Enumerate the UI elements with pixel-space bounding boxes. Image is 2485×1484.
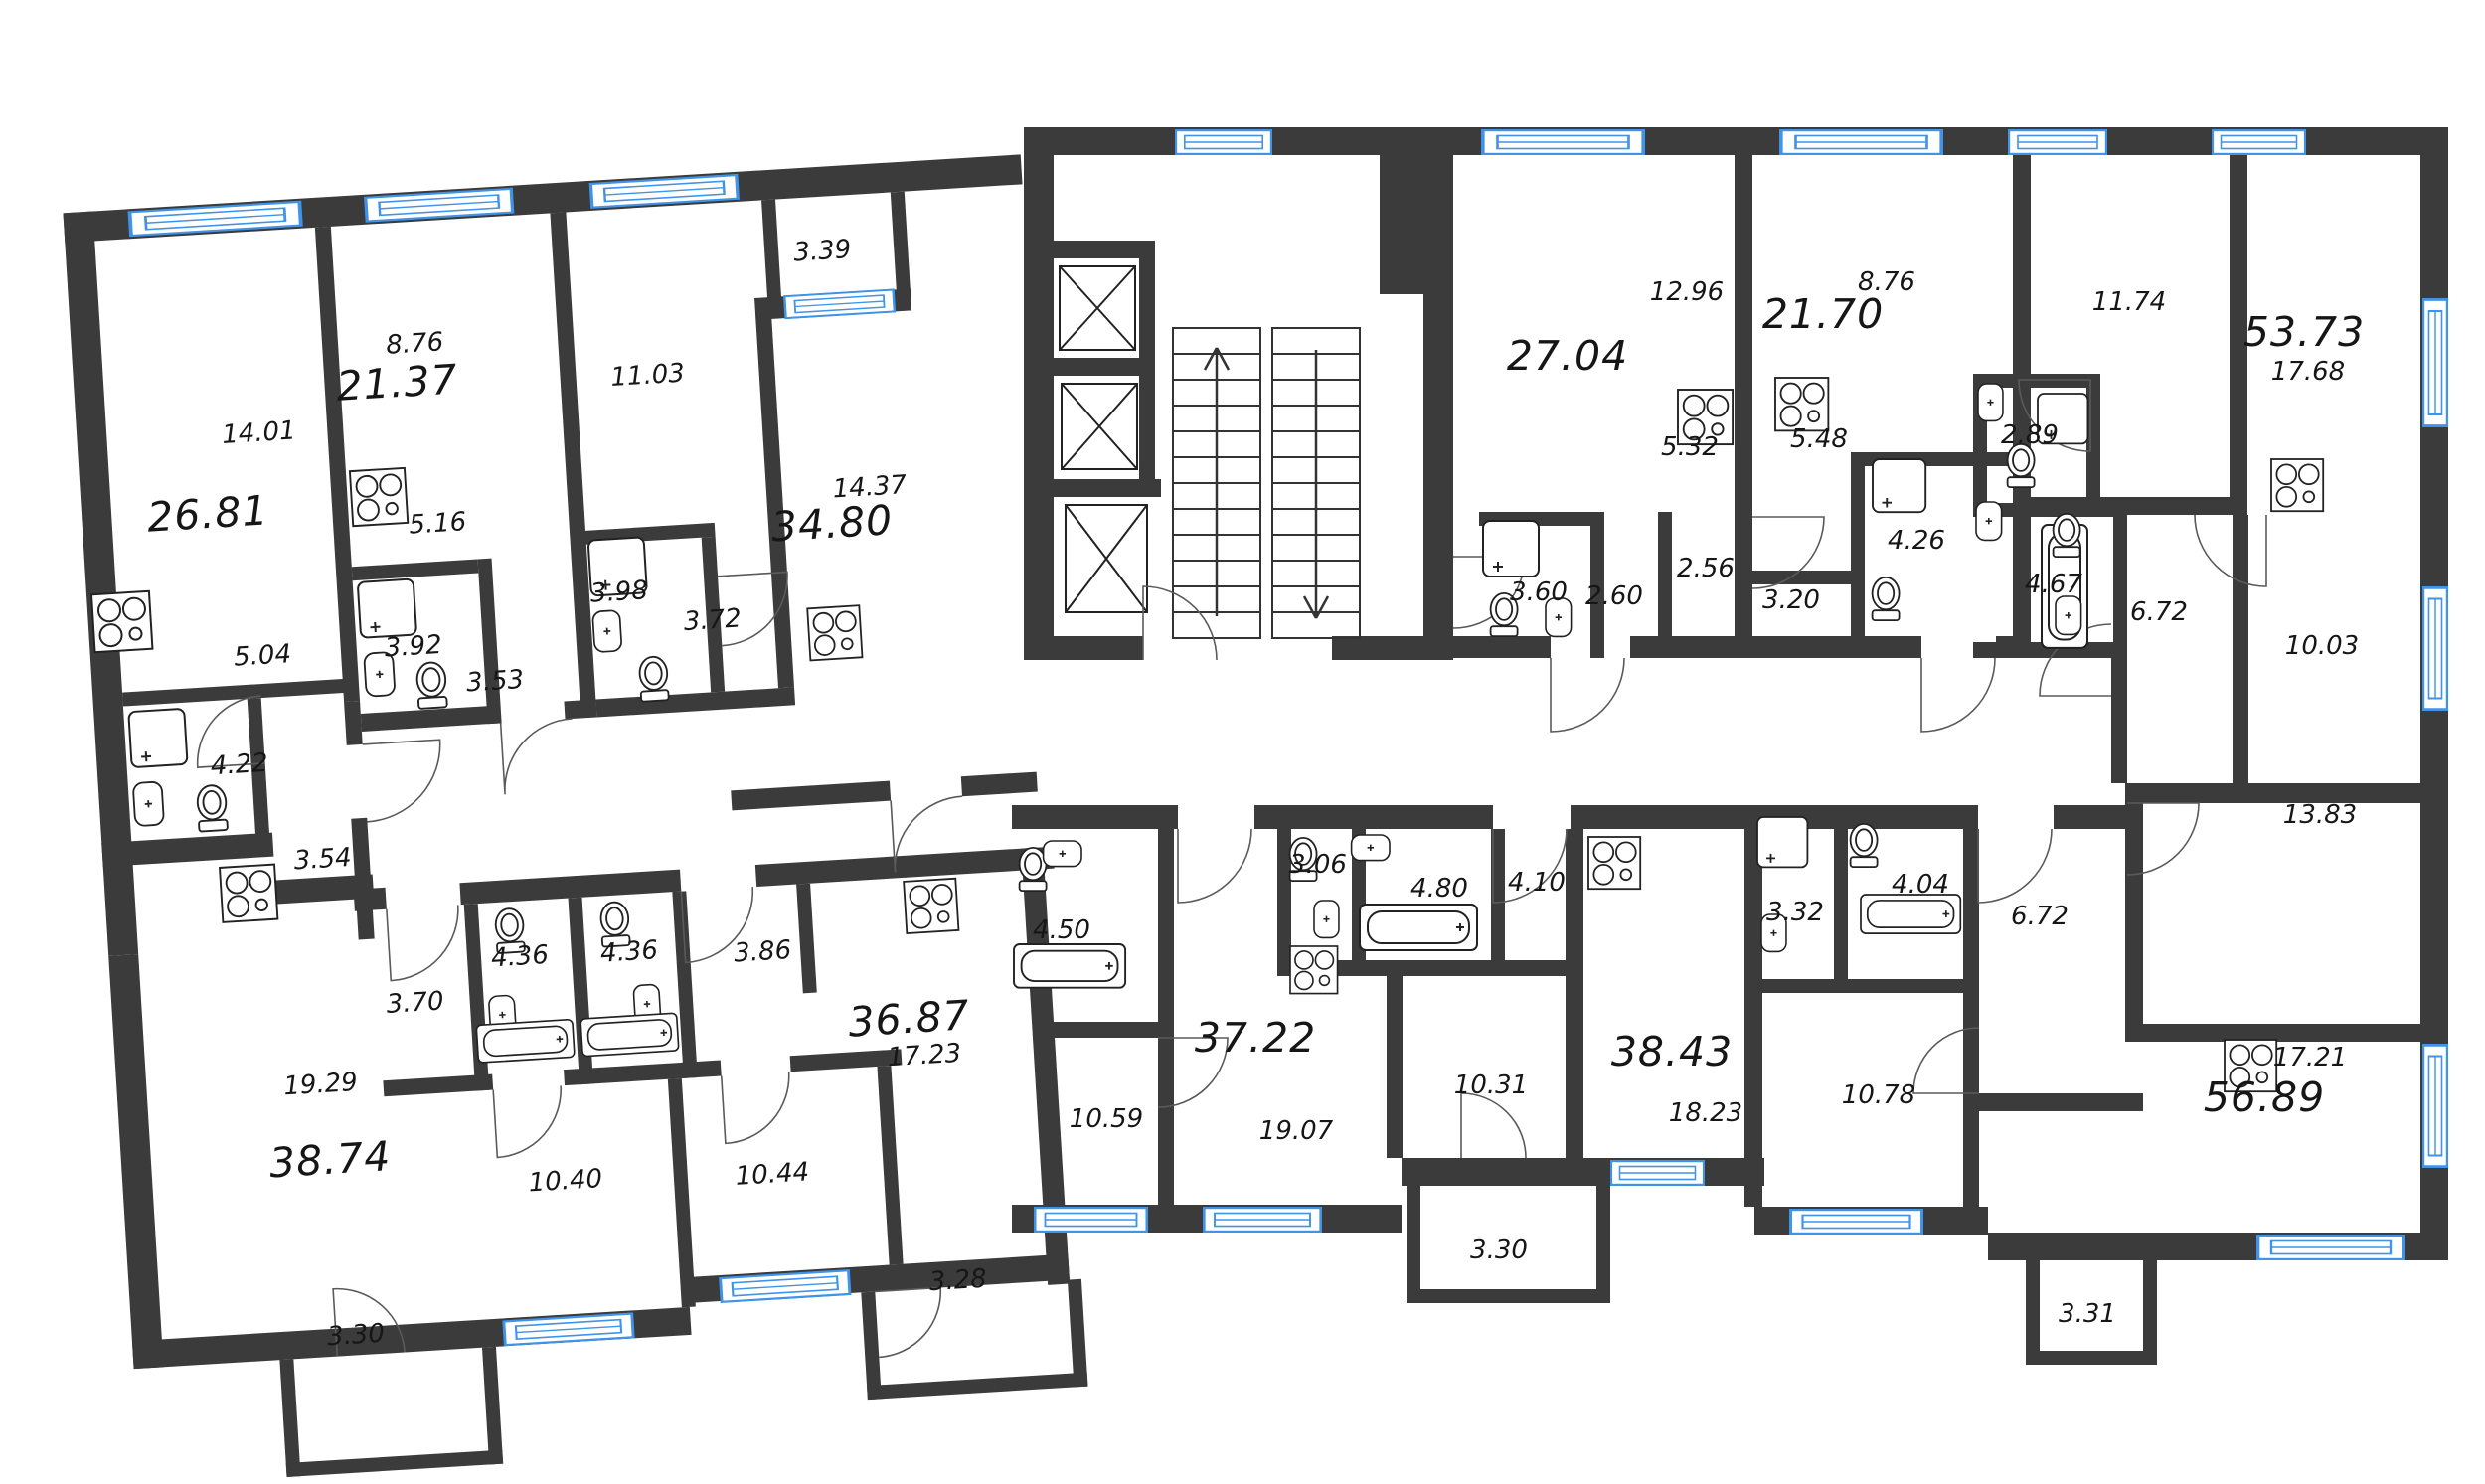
room-area: 10.78: [1842, 1080, 1915, 1110]
sink-icon: [1044, 841, 1081, 867]
window: [1781, 130, 1942, 154]
apartment-total: 26.81: [146, 486, 270, 541]
stove-icon: [91, 591, 152, 652]
room-area: 4.22: [210, 748, 269, 781]
room-area: 14.37: [832, 470, 909, 505]
room-area: 2.89: [2001, 420, 2059, 450]
balcony-area: 3.31: [2059, 1299, 2116, 1329]
room-area: 17.21: [2273, 1043, 2347, 1072]
room-area: 3.98: [589, 576, 649, 608]
room-area: 10.31: [1454, 1071, 1528, 1100]
apartment-total: 27.04: [1507, 332, 1628, 380]
room-area: 4.10: [1508, 868, 1566, 898]
room-area: 8.76: [1858, 267, 1915, 297]
room-area: 6.72: [2130, 597, 2188, 627]
apartment-total: 38.43: [1611, 1028, 1733, 1075]
window: [1204, 1208, 1321, 1232]
toilet-icon: [1020, 848, 1047, 891]
room-area: 10.40: [528, 1164, 603, 1198]
sink-icon: [1976, 502, 2002, 540]
stove-icon: [904, 879, 958, 933]
room-area: 10.03: [2285, 631, 2359, 661]
right-wing: 27.04 12.96 5.32 3.60 2.60 2.56 21.70 8.…: [1012, 127, 2448, 1365]
room-area: 3.92: [384, 630, 443, 663]
shower-icon: [358, 579, 416, 638]
bathtub-icon: [580, 1013, 679, 1057]
room-area: 11.74: [2092, 287, 2166, 317]
loggia-area: 3.39: [792, 235, 852, 267]
toilet-icon: [416, 662, 447, 709]
shower-icon: [1873, 459, 1925, 512]
toilet-icon: [1851, 824, 1878, 867]
room-area: 17.68: [2271, 357, 2345, 387]
room-area: 10.59: [1070, 1104, 1143, 1134]
room-area: 17.23: [887, 1039, 962, 1072]
bathtub-icon: [1861, 895, 1960, 933]
room-area: 4.04: [1892, 870, 1949, 900]
stove-icon: [220, 865, 277, 922]
room-area: 3.70: [386, 986, 445, 1019]
window: [2009, 130, 2106, 154]
elevator-shafts: [1060, 266, 1147, 612]
room-area: 3.86: [733, 935, 792, 968]
room-area: 12.96: [1650, 277, 1724, 307]
sink-icon: [1314, 901, 1339, 937]
balcony-36-87: [861, 1279, 1087, 1400]
shower-icon: [1757, 817, 1807, 867]
shower-icon: [128, 709, 187, 767]
sink-icon: [1352, 835, 1390, 861]
balcony-38-74: [279, 1347, 503, 1477]
window: [2423, 587, 2447, 710]
room-area: 5.32: [1661, 432, 1719, 462]
window: [1483, 130, 1644, 154]
sink-icon: [133, 781, 164, 826]
room-area: 6.72: [2011, 902, 2069, 931]
room-area: 5.16: [408, 507, 467, 540]
apartment-total: 21.70: [1762, 290, 1884, 338]
room-area: 5.48: [1790, 424, 1848, 454]
apartment-total: 34.80: [769, 496, 894, 551]
room-area: 8.76: [385, 327, 444, 360]
balcony-area: 3.30: [1470, 1236, 1528, 1265]
staircase: [1173, 328, 1360, 638]
room-area: 14.01: [221, 415, 296, 449]
apartment-total: 56.89: [2204, 1073, 2325, 1121]
apartment-total: 21.37: [335, 355, 459, 410]
room-area: 3.20: [1762, 585, 1820, 615]
room-area: 4.80: [1410, 874, 1468, 904]
window: [1611, 1161, 1704, 1185]
room-area: 4.50: [1033, 915, 1090, 945]
room-area: 5.04: [233, 639, 292, 672]
bathtub-icon: [1360, 905, 1477, 950]
toilet-icon: [2008, 444, 2035, 487]
sink-icon: [2056, 596, 2081, 634]
room-area: 19.07: [1259, 1116, 1334, 1146]
stove-icon: [2271, 459, 2323, 511]
window: [2423, 299, 2447, 425]
stove-icon: [1588, 837, 1640, 889]
room-area: 2.56: [1677, 554, 1735, 583]
apartment-total: 53.73: [2243, 308, 2365, 356]
room-area: 11.03: [610, 358, 686, 392]
room-area: 10.44: [735, 1157, 810, 1191]
elevator-icon: [1060, 266, 1135, 350]
room-area: 4.67: [2025, 570, 2082, 599]
window: [1790, 1210, 1921, 1234]
apartment-total: 37.22: [1195, 1014, 1316, 1062]
apartment-total: 38.74: [268, 1132, 393, 1187]
balcony-area: 3.30: [326, 1319, 386, 1352]
window: [2258, 1236, 2404, 1259]
window: [1176, 130, 1271, 154]
elevator-icon: [1066, 505, 1147, 612]
toilet-icon: [197, 784, 228, 831]
window: [2213, 130, 2305, 154]
room-area: 2.60: [1585, 581, 1643, 611]
shower-icon: [1483, 521, 1539, 577]
stove-icon: [1775, 378, 1828, 430]
room-area: 3.54: [293, 843, 353, 876]
window: [2423, 1045, 2447, 1167]
bathtub-icon: [1014, 944, 1125, 988]
toilet-icon: [1873, 577, 1900, 620]
room-area: 3.32: [1766, 898, 1824, 927]
room-area: 3.60: [1510, 577, 1568, 607]
sink-icon: [592, 610, 622, 652]
elevator-icon: [1062, 384, 1137, 469]
room-area: 4.36: [599, 935, 659, 968]
window: [1035, 1208, 1147, 1232]
toilet-icon: [2054, 514, 2080, 557]
stove-icon: [1290, 946, 1338, 994]
bathtub-icon: [476, 1020, 575, 1064]
room-area: 4.26: [1888, 526, 1945, 556]
toilet-icon: [639, 656, 669, 702]
room-area: 3.06: [1289, 850, 1347, 880]
window: [784, 289, 895, 318]
room-area: 3.72: [683, 603, 743, 636]
room-area: 13.83: [2283, 800, 2357, 830]
room-area: 19.29: [282, 1068, 358, 1101]
room-area: 18.23: [1669, 1098, 1742, 1128]
floor-plan-canvas: 26.81 14.01 5.04 4.22 3.54 21.37 8.76 5.…: [0, 0, 2485, 1484]
stove-icon: [350, 468, 408, 526]
balcony-area: 3.28: [928, 1264, 988, 1297]
room-area: 4.36: [490, 940, 550, 973]
sink-icon: [1978, 384, 2003, 420]
room-area: 3.53: [465, 665, 525, 698]
window: [129, 202, 301, 236]
stove-icon: [807, 605, 862, 660]
left-wing: 26.81 14.01 5.04 4.22 3.54 21.37 8.76 5.…: [64, 154, 1099, 1484]
